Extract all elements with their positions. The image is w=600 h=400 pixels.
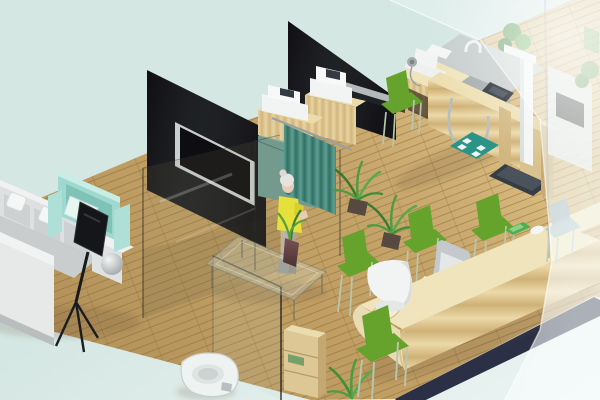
isometric-clinic-render: [0, 0, 600, 400]
sphere-lamp: [101, 253, 123, 275]
toilet-bowl: [198, 368, 218, 380]
toilet: [181, 353, 238, 397]
shelf-side: [318, 333, 326, 398]
bp-device-horn-center: [410, 60, 415, 65]
woman-hair-bun: [279, 169, 286, 176]
scene-canvas: [0, 0, 600, 400]
armchair-arm-left: [48, 190, 62, 238]
armchair-arm-right: [114, 204, 130, 252]
wooden-shelf-unit: [284, 325, 326, 398]
